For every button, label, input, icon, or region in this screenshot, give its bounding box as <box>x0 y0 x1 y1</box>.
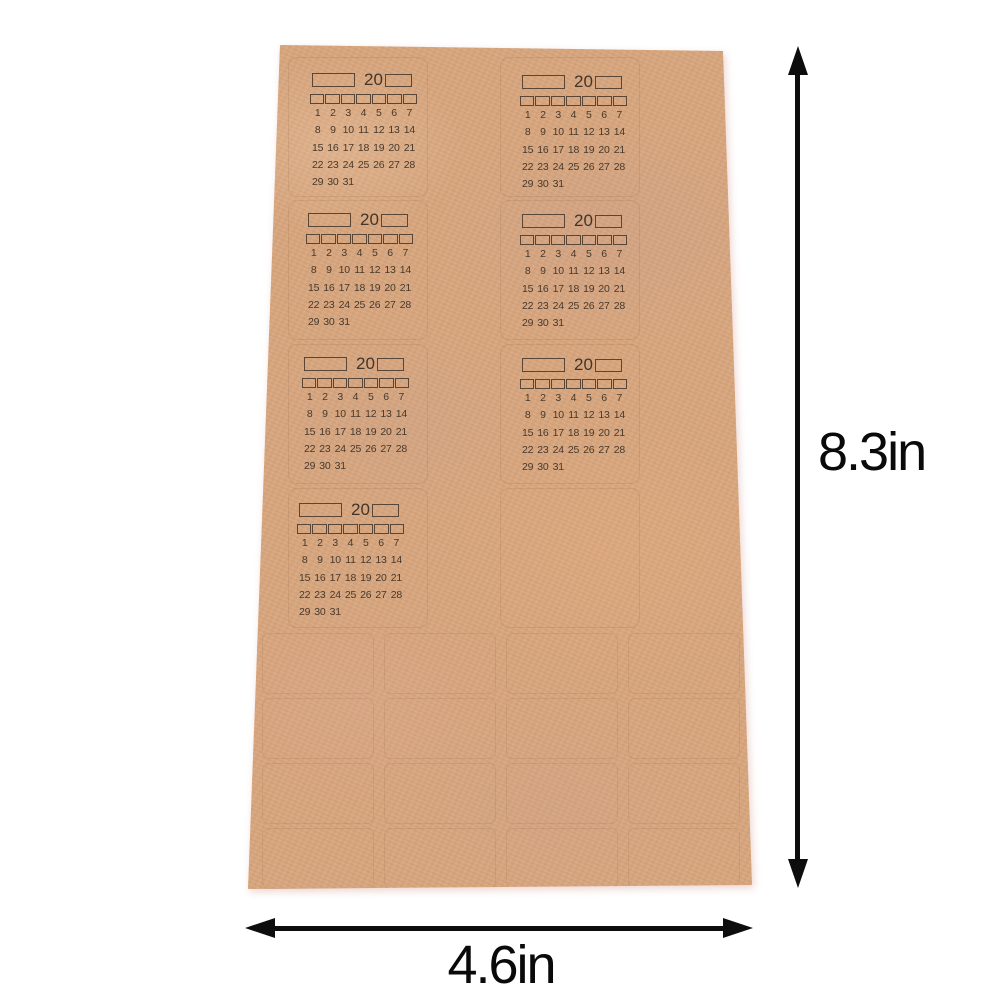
day-number: 25 <box>566 298 581 315</box>
day-number: 14 <box>612 124 627 141</box>
day-number: 27 <box>596 159 611 176</box>
month-write-box <box>312 73 355 87</box>
day-number: 10 <box>328 552 343 569</box>
day-number <box>358 604 373 621</box>
day-number: 21 <box>612 142 627 159</box>
diecut-outline <box>384 763 496 824</box>
day-number: 22 <box>310 157 325 174</box>
weekday-checkbox <box>613 235 627 245</box>
day-number: 22 <box>306 297 321 314</box>
arrow-left-icon <box>245 918 275 938</box>
day-number: 2 <box>325 105 340 122</box>
day-number: 12 <box>581 124 596 141</box>
calendar-header: 20 <box>520 74 627 93</box>
day-number: 24 <box>341 157 356 174</box>
day-number: 20 <box>378 424 393 441</box>
weekday-checkbox <box>359 524 373 534</box>
day-number: 3 <box>337 245 352 262</box>
weekday-checkbox <box>403 94 417 104</box>
day-number: 3 <box>551 246 566 263</box>
weekday-checkbox <box>597 96 611 106</box>
month-write-box <box>304 357 347 371</box>
day-number: 16 <box>535 425 550 442</box>
day-number <box>373 604 388 621</box>
day-number: 29 <box>297 604 312 621</box>
day-number: 15 <box>520 142 535 159</box>
day-number: 28 <box>394 441 409 458</box>
day-number: 10 <box>341 122 356 139</box>
weekday-checkbox <box>337 234 351 244</box>
day-number: 30 <box>325 174 340 191</box>
day-number <box>612 176 627 193</box>
day-number: 20 <box>596 425 611 442</box>
day-number: 3 <box>551 107 566 124</box>
day-number <box>386 174 401 191</box>
day-number: 25 <box>356 157 371 174</box>
day-number: 3 <box>333 389 348 406</box>
day-number: 6 <box>596 107 611 124</box>
calendar-sticker: 2012345678910111213141516171819202122232… <box>310 72 417 191</box>
day-number: 29 <box>520 176 535 193</box>
day-number <box>581 459 596 476</box>
day-number: 26 <box>358 587 373 604</box>
weekday-checkbox <box>535 96 549 106</box>
month-write-box <box>522 214 565 228</box>
day-number: 4 <box>566 107 581 124</box>
day-number-grid: 1234567891011121314151617181920212223242… <box>306 245 413 331</box>
day-number: 10 <box>551 407 566 424</box>
day-number: 7 <box>612 246 627 263</box>
day-number <box>566 315 581 332</box>
calendar-header: 20 <box>306 212 413 231</box>
day-number: 18 <box>356 140 371 157</box>
day-number: 7 <box>612 390 627 407</box>
day-number: 20 <box>386 140 401 157</box>
diecut-outline <box>262 633 374 694</box>
diecut-outline <box>506 633 618 694</box>
day-number: 30 <box>312 604 327 621</box>
weekday-checkbox <box>321 234 335 244</box>
month-write-box <box>522 358 565 372</box>
day-number: 8 <box>306 262 321 279</box>
day-number: 16 <box>312 570 327 587</box>
year-prefix-label: 20 <box>364 72 383 88</box>
day-number: 18 <box>566 142 581 159</box>
weekday-checkbox-row <box>306 234 413 244</box>
day-number: 18 <box>566 281 581 298</box>
day-number: 14 <box>612 263 627 280</box>
day-number: 17 <box>333 424 348 441</box>
day-number: 2 <box>535 246 550 263</box>
day-number: 13 <box>373 552 388 569</box>
day-number <box>343 604 358 621</box>
year-write-box <box>595 359 622 372</box>
weekday-checkbox <box>372 94 386 104</box>
day-number: 8 <box>302 406 317 423</box>
day-number: 5 <box>358 535 373 552</box>
weekday-checkbox <box>312 524 326 534</box>
year-prefix-label: 20 <box>351 502 370 518</box>
day-number: 31 <box>333 458 348 475</box>
weekday-checkbox <box>551 379 565 389</box>
day-number-grid: 1234567891011121314151617181920212223242… <box>310 105 417 191</box>
day-number: 13 <box>596 263 611 280</box>
day-number <box>352 314 367 331</box>
diecut-outline <box>262 828 374 889</box>
day-number: 17 <box>341 140 356 157</box>
day-number <box>581 315 596 332</box>
day-number: 28 <box>612 442 627 459</box>
day-number: 16 <box>321 280 336 297</box>
day-number: 28 <box>398 297 413 314</box>
day-number <box>378 458 393 475</box>
weekday-checkbox <box>379 378 393 388</box>
day-number: 28 <box>402 157 417 174</box>
day-number-grid: 1234567891011121314151617181920212223242… <box>302 389 409 475</box>
diecut-outline <box>384 633 496 694</box>
day-number: 30 <box>535 176 550 193</box>
day-number: 21 <box>612 281 627 298</box>
day-number: 9 <box>535 124 550 141</box>
day-number <box>566 459 581 476</box>
day-number: 15 <box>306 280 321 297</box>
day-number: 31 <box>341 174 356 191</box>
day-number: 26 <box>371 157 386 174</box>
day-number: 8 <box>297 552 312 569</box>
weekday-checkbox <box>333 378 347 388</box>
day-number <box>382 314 397 331</box>
calendar-sticker: 2012345678910111213141516171819202122232… <box>306 212 413 331</box>
day-number: 31 <box>328 604 343 621</box>
weekday-checkbox <box>302 378 316 388</box>
weekday-checkbox-row <box>520 235 627 245</box>
year-write-box <box>595 76 622 89</box>
day-number: 5 <box>367 245 382 262</box>
day-number: 17 <box>551 281 566 298</box>
day-number <box>371 174 386 191</box>
day-number: 29 <box>310 174 325 191</box>
day-number: 2 <box>321 245 336 262</box>
day-number: 12 <box>581 407 596 424</box>
weekday-checkbox-row <box>297 524 404 534</box>
day-number: 26 <box>581 442 596 459</box>
weekday-checkbox <box>597 235 611 245</box>
weekday-checkbox <box>399 234 413 244</box>
day-number: 22 <box>520 442 535 459</box>
calendar-header: 20 <box>302 356 409 375</box>
day-number: 5 <box>581 246 596 263</box>
day-number: 7 <box>389 535 404 552</box>
day-number: 13 <box>382 262 397 279</box>
day-number: 6 <box>596 246 611 263</box>
day-number: 31 <box>337 314 352 331</box>
day-number: 5 <box>581 390 596 407</box>
weekday-checkbox-row <box>310 94 417 104</box>
day-number <box>394 458 409 475</box>
weekday-checkbox <box>383 234 397 244</box>
day-number <box>402 174 417 191</box>
day-number: 7 <box>402 105 417 122</box>
day-number: 11 <box>356 122 371 139</box>
day-number: 15 <box>302 424 317 441</box>
weekday-checkbox <box>356 94 370 104</box>
day-number: 27 <box>596 298 611 315</box>
day-number: 20 <box>382 280 397 297</box>
day-number: 19 <box>358 570 373 587</box>
day-number <box>566 176 581 193</box>
day-number: 23 <box>312 587 327 604</box>
day-number: 11 <box>566 263 581 280</box>
day-number: 11 <box>566 407 581 424</box>
weekday-checkbox <box>343 524 357 534</box>
day-number: 13 <box>378 406 393 423</box>
day-number: 29 <box>520 459 535 476</box>
year-write-box <box>595 215 622 228</box>
day-number: 17 <box>337 280 352 297</box>
weekday-checkbox <box>341 94 355 104</box>
day-number: 19 <box>371 140 386 157</box>
weekday-checkbox <box>597 379 611 389</box>
day-number: 26 <box>581 298 596 315</box>
day-number: 9 <box>317 406 332 423</box>
day-number: 8 <box>310 122 325 139</box>
calendar-header: 20 <box>520 213 627 232</box>
day-number: 4 <box>566 246 581 263</box>
day-number <box>398 314 413 331</box>
weekday-checkbox <box>566 235 580 245</box>
weekday-checkbox <box>364 378 378 388</box>
diecut-outline <box>262 698 374 759</box>
day-number: 4 <box>348 389 363 406</box>
day-number: 16 <box>317 424 332 441</box>
year-prefix-label: 20 <box>356 356 375 372</box>
day-number: 6 <box>382 245 397 262</box>
weekday-checkbox <box>582 96 596 106</box>
weekday-checkbox <box>551 96 565 106</box>
day-number: 20 <box>596 142 611 159</box>
day-number: 14 <box>394 406 409 423</box>
day-number: 30 <box>317 458 332 475</box>
day-number: 23 <box>325 157 340 174</box>
day-number: 10 <box>333 406 348 423</box>
weekday-checkbox <box>613 96 627 106</box>
width-arrow-line <box>262 926 740 931</box>
day-number-grid: 1234567891011121314151617181920212223242… <box>520 246 627 332</box>
day-number: 8 <box>520 407 535 424</box>
month-write-box <box>522 75 565 89</box>
day-number: 16 <box>325 140 340 157</box>
year-write-box <box>385 74 412 87</box>
day-number: 1 <box>520 390 535 407</box>
day-number: 1 <box>520 107 535 124</box>
day-number: 26 <box>363 441 378 458</box>
day-number <box>367 314 382 331</box>
day-number: 10 <box>551 263 566 280</box>
day-number: 19 <box>363 424 378 441</box>
day-number: 1 <box>302 389 317 406</box>
arrow-down-icon <box>788 859 808 888</box>
day-number: 2 <box>535 107 550 124</box>
calendar-sticker: 2012345678910111213141516171819202122232… <box>520 213 627 332</box>
weekday-checkbox <box>582 235 596 245</box>
day-number: 12 <box>367 262 382 279</box>
day-number: 6 <box>373 535 388 552</box>
arrow-up-icon <box>788 46 808 75</box>
diecut-outline <box>500 488 640 628</box>
sticker-sheet: 2012345678910111213141516171819202122232… <box>248 45 752 889</box>
weekday-checkbox <box>395 378 409 388</box>
day-number: 3 <box>341 105 356 122</box>
year-write-box <box>381 214 408 227</box>
weekday-checkbox <box>328 524 342 534</box>
day-number: 5 <box>371 105 386 122</box>
day-number: 24 <box>551 159 566 176</box>
day-number: 31 <box>551 459 566 476</box>
day-number: 5 <box>363 389 378 406</box>
day-number: 18 <box>352 280 367 297</box>
day-number: 16 <box>535 281 550 298</box>
day-number: 18 <box>343 570 358 587</box>
day-number: 8 <box>520 263 535 280</box>
weekday-checkbox <box>310 94 324 104</box>
day-number: 9 <box>535 407 550 424</box>
day-number: 1 <box>520 246 535 263</box>
day-number: 5 <box>581 107 596 124</box>
day-number: 19 <box>581 281 596 298</box>
day-number: 1 <box>306 245 321 262</box>
diecut-outline <box>628 633 740 694</box>
day-number <box>596 176 611 193</box>
day-number: 23 <box>535 298 550 315</box>
day-number <box>596 315 611 332</box>
day-number: 12 <box>358 552 373 569</box>
day-number: 31 <box>551 176 566 193</box>
day-number: 11 <box>352 262 367 279</box>
day-number <box>348 458 363 475</box>
day-number: 7 <box>394 389 409 406</box>
diecut-outline <box>628 828 740 889</box>
day-number: 19 <box>367 280 382 297</box>
weekday-checkbox <box>306 234 320 244</box>
day-number: 30 <box>535 315 550 332</box>
day-number: 1 <box>297 535 312 552</box>
day-number: 12 <box>581 263 596 280</box>
year-write-box <box>377 358 404 371</box>
day-number: 6 <box>596 390 611 407</box>
day-number: 25 <box>352 297 367 314</box>
day-number: 13 <box>596 124 611 141</box>
weekday-checkbox <box>582 379 596 389</box>
day-number: 25 <box>566 159 581 176</box>
day-number: 27 <box>596 442 611 459</box>
width-dimension-label: 4.6in <box>381 938 621 992</box>
day-number: 10 <box>551 124 566 141</box>
year-prefix-label: 20 <box>360 212 379 228</box>
day-number: 19 <box>581 425 596 442</box>
weekday-checkbox <box>368 234 382 244</box>
day-number: 1 <box>310 105 325 122</box>
day-number: 15 <box>520 281 535 298</box>
day-number: 15 <box>310 140 325 157</box>
day-number <box>356 174 371 191</box>
diecut-outline <box>384 698 496 759</box>
weekday-checkbox <box>566 379 580 389</box>
calendar-header: 20 <box>520 357 627 376</box>
height-dimension-label: 8.3in <box>818 425 925 479</box>
day-number: 11 <box>343 552 358 569</box>
year-prefix-label: 20 <box>574 74 593 90</box>
day-number <box>612 459 627 476</box>
day-number: 21 <box>612 425 627 442</box>
weekday-checkbox <box>387 94 401 104</box>
day-number: 4 <box>343 535 358 552</box>
day-number-grid: 1234567891011121314151617181920212223242… <box>297 535 404 621</box>
weekday-checkbox <box>297 524 311 534</box>
day-number: 18 <box>566 425 581 442</box>
day-number: 27 <box>378 441 393 458</box>
year-prefix-label: 20 <box>574 213 593 229</box>
weekday-checkbox <box>566 96 580 106</box>
day-number: 17 <box>551 425 566 442</box>
diecut-outline <box>262 763 374 824</box>
day-number: 25 <box>566 442 581 459</box>
day-number: 24 <box>551 298 566 315</box>
day-number: 2 <box>317 389 332 406</box>
day-number: 9 <box>535 263 550 280</box>
day-number: 13 <box>596 407 611 424</box>
day-number: 16 <box>535 142 550 159</box>
year-write-box <box>372 504 399 517</box>
day-number: 12 <box>363 406 378 423</box>
day-number: 15 <box>297 570 312 587</box>
day-number: 25 <box>348 441 363 458</box>
day-number: 23 <box>317 441 332 458</box>
day-number: 14 <box>389 552 404 569</box>
weekday-checkbox <box>348 378 362 388</box>
weekday-checkbox-row <box>520 379 627 389</box>
day-number <box>612 315 627 332</box>
day-number: 15 <box>520 425 535 442</box>
diecut-outline <box>506 698 618 759</box>
day-number: 27 <box>386 157 401 174</box>
day-number: 29 <box>520 315 535 332</box>
weekday-checkbox-row <box>520 96 627 106</box>
day-number: 23 <box>535 159 550 176</box>
day-number: 2 <box>312 535 327 552</box>
day-number: 29 <box>306 314 321 331</box>
year-prefix-label: 20 <box>574 357 593 373</box>
day-number: 4 <box>352 245 367 262</box>
day-number: 24 <box>328 587 343 604</box>
day-number: 3 <box>551 390 566 407</box>
day-number: 22 <box>297 587 312 604</box>
month-write-box <box>308 213 351 227</box>
weekday-checkbox <box>390 524 404 534</box>
day-number: 7 <box>612 107 627 124</box>
day-number: 25 <box>343 587 358 604</box>
calendar-sticker: 2012345678910111213141516171819202122232… <box>520 357 627 476</box>
day-number: 22 <box>520 298 535 315</box>
weekday-checkbox <box>520 96 534 106</box>
day-number: 11 <box>566 124 581 141</box>
calendar-sticker: 2012345678910111213141516171819202122232… <box>297 502 404 621</box>
day-number: 13 <box>386 122 401 139</box>
day-number: 30 <box>321 314 336 331</box>
calendar-header: 20 <box>297 502 404 521</box>
diecut-outline <box>628 763 740 824</box>
weekday-checkbox <box>352 234 366 244</box>
weekday-checkbox <box>535 379 549 389</box>
